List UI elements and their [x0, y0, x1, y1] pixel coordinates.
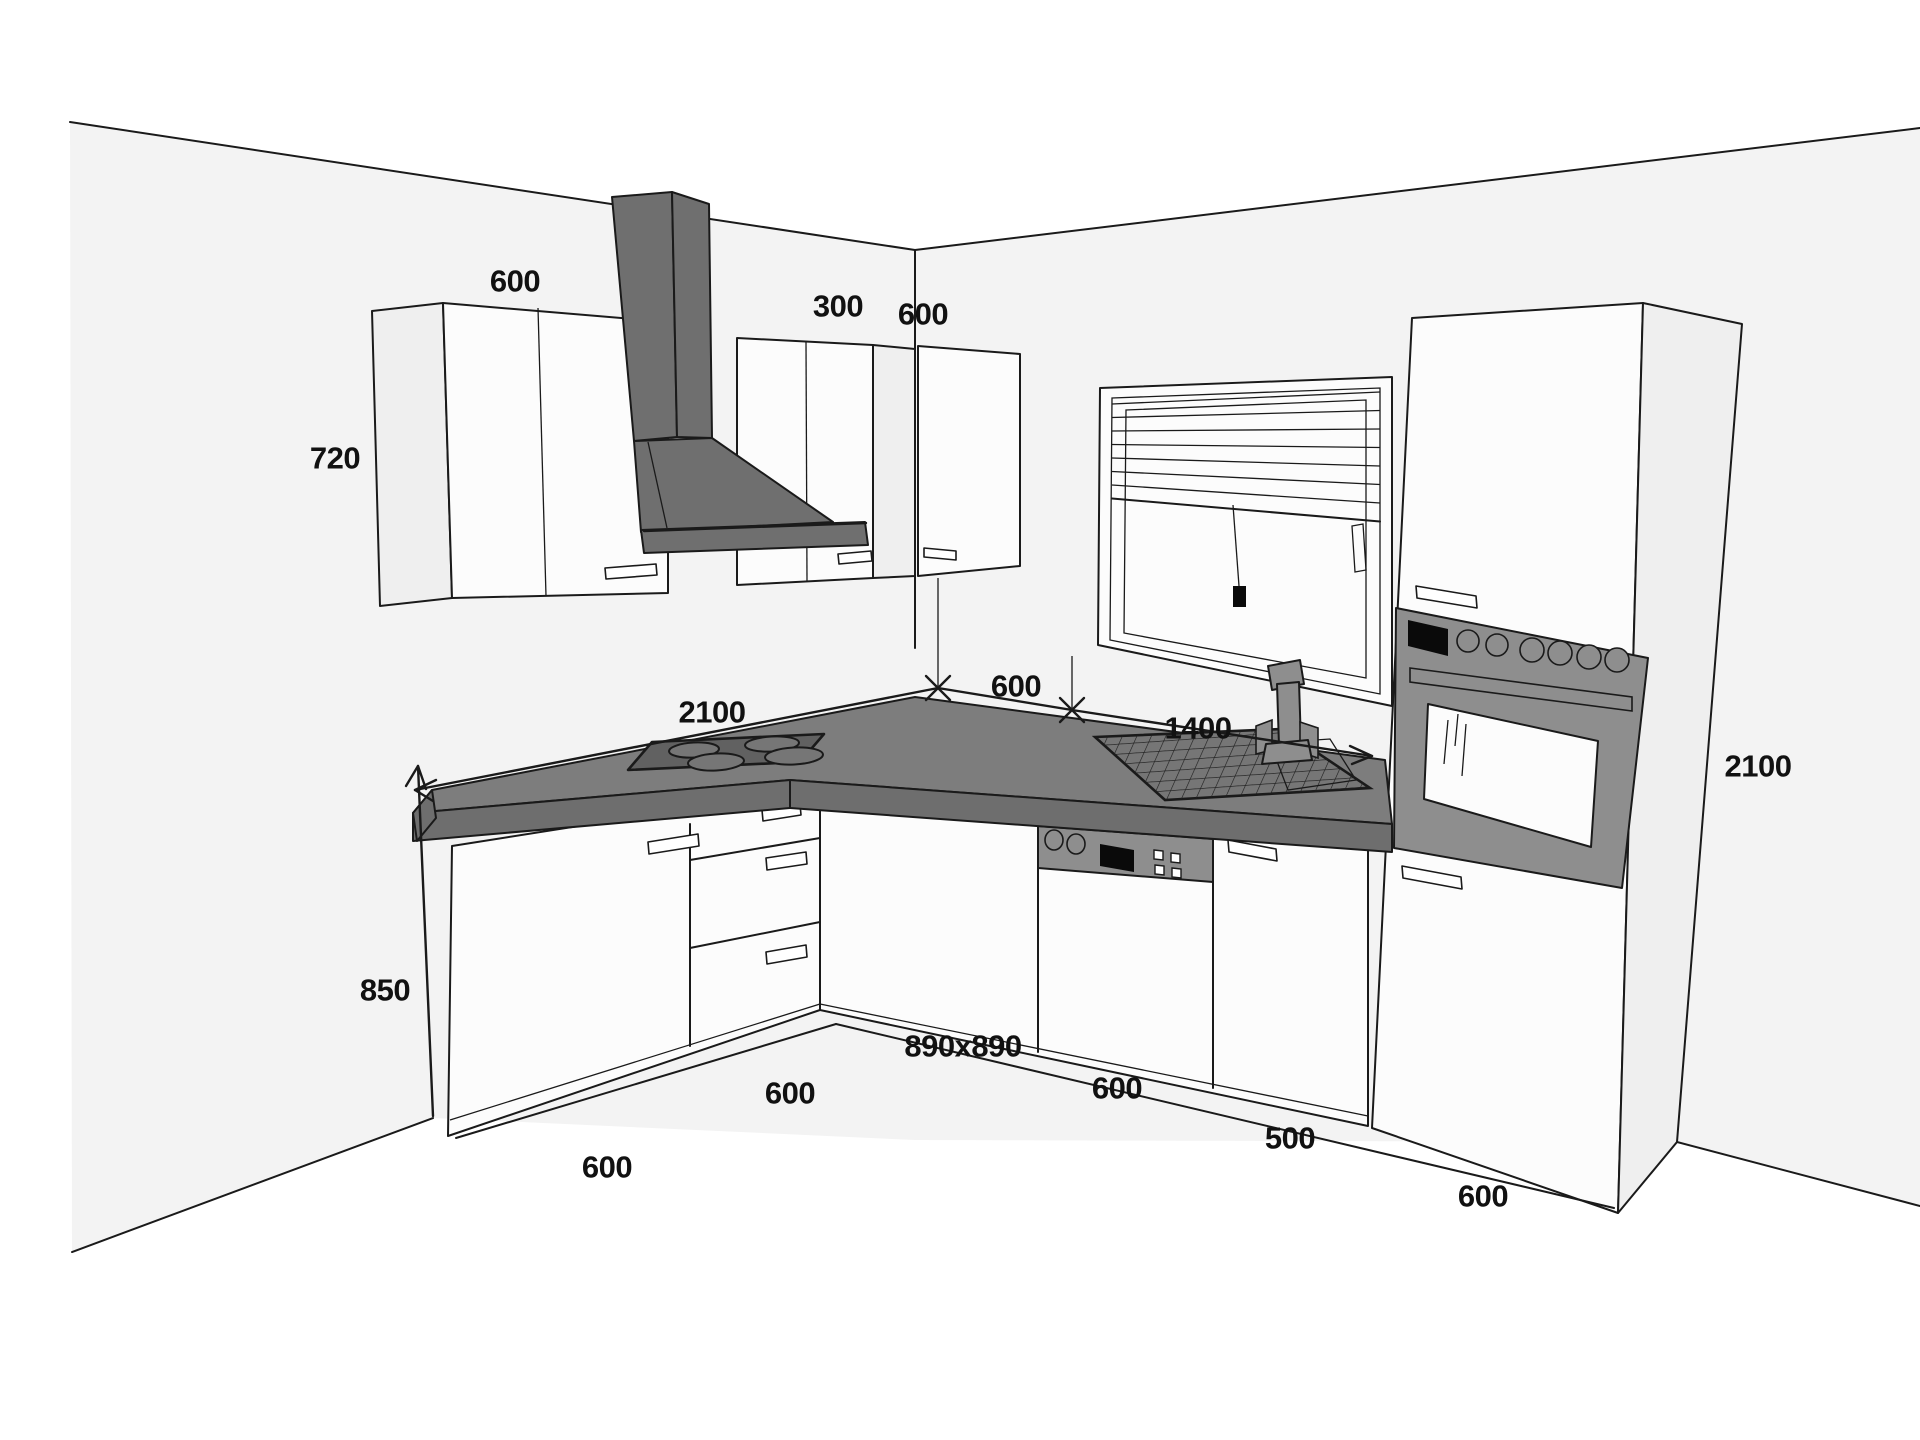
dim-label-base-cabinet-1-width: 600 [582, 1152, 632, 1183]
oven-knob[interactable] [1457, 630, 1479, 652]
cabinet-handle[interactable] [838, 551, 872, 564]
dim-label-base-cabinet-height: 850 [360, 975, 410, 1006]
dim-label-wall-cabinet-width: 600 [490, 266, 540, 297]
dim-label-tall-cabinet-width: 600 [1458, 1181, 1508, 1212]
cabinet-handle[interactable] [924, 548, 956, 560]
oven-knob[interactable] [1486, 634, 1508, 656]
dishwasher-button[interactable] [1155, 865, 1164, 875]
dishwasher-button[interactable] [1172, 868, 1181, 878]
right-wall-cabinet[interactable] [918, 346, 1020, 576]
oven-knob[interactable] [1577, 645, 1601, 669]
built-in-oven[interactable] [1394, 608, 1648, 888]
dim-label-left-counter-length: 2100 [679, 697, 746, 728]
dim-label-drawer-unit-width: 600 [765, 1078, 815, 1109]
dishwasher-button[interactable] [1154, 850, 1163, 860]
kitchen-3d-drawing [0, 0, 1920, 1440]
dim-label-wall-cabinet-height: 720 [310, 443, 360, 474]
wall-cabinet-left[interactable] [372, 303, 668, 606]
oven-knob[interactable] [1548, 641, 1572, 665]
dishwasher-knob[interactable] [1045, 830, 1063, 850]
dishwasher-button[interactable] [1171, 853, 1180, 863]
blind-cord-weight [1233, 586, 1246, 607]
dim-label-corner-base-cabinet-size: 890x890 [904, 1031, 1021, 1062]
hood-chimney-side [672, 192, 712, 438]
faucet-body [1277, 682, 1301, 746]
dishwasher-knob[interactable] [1067, 834, 1085, 854]
dim-label-dishwasher-width: 600 [1092, 1073, 1142, 1104]
dim-label-tall-cabinet-height: 2100 [1725, 751, 1792, 782]
dim-label-corner-wall-cabinet-width: 300 [813, 291, 863, 322]
oven-knob[interactable] [1520, 638, 1544, 662]
oven-knob[interactable] [1605, 648, 1629, 672]
dim-label-right-counter-length: 1400 [1165, 713, 1232, 744]
dim-label-right-wall-cabinet-width: 600 [898, 299, 948, 330]
dim-label-corner-counter-width: 600 [991, 671, 1041, 702]
dim-label-mid-cabinet-width: 500 [1265, 1123, 1315, 1154]
kitchen-plan-canvas: 600 720 300 600 2100 600 1400 2100 850 6… [0, 0, 1920, 1440]
